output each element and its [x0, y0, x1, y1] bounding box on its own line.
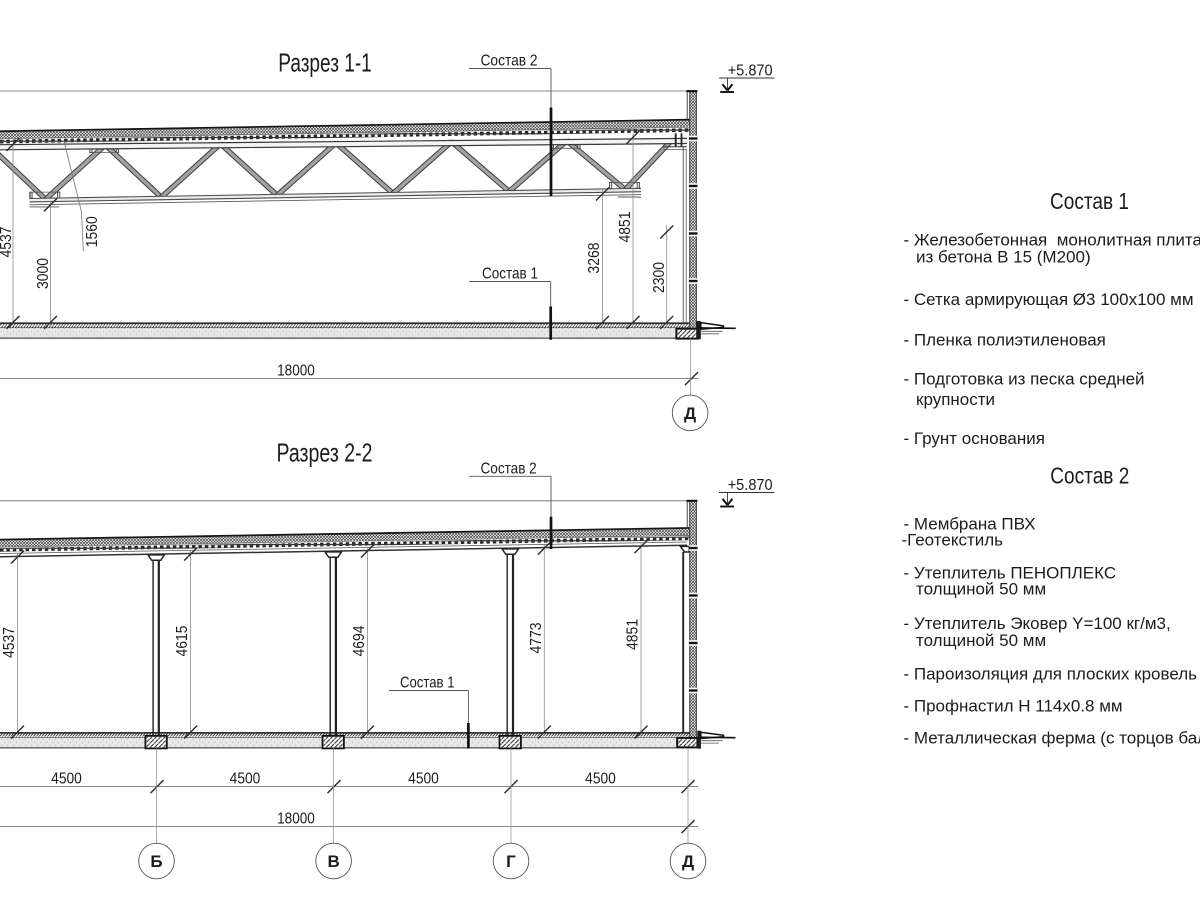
svg-text:Разрез 2-2: Разрез 2-2 — [277, 437, 373, 467]
svg-text:- Сетка армирующая Ø3 100х100: - Сетка армирующая Ø3 100х100 мм — [904, 290, 1194, 309]
svg-text:4537: 4537 — [0, 226, 15, 257]
svg-text:- Профнастил Н 114х0.8 мм: - Профнастил Н 114х0.8 мм — [904, 697, 1123, 716]
svg-text:толщиной 50 мм: толщиной 50 мм — [916, 579, 1046, 598]
svg-text:4500: 4500 — [51, 771, 82, 788]
svg-text:крупности: крупности — [916, 390, 995, 409]
svg-text:4694: 4694 — [351, 625, 368, 656]
svg-text:Состав 1: Состав 1 — [400, 675, 455, 692]
svg-text:4500: 4500 — [408, 771, 439, 788]
svg-text:Состав 2: Состав 2 — [481, 53, 538, 70]
svg-text:Г: Г — [506, 852, 516, 871]
svg-text:-Геотекстиль: -Геотекстиль — [902, 530, 1004, 549]
svg-text:2300: 2300 — [651, 262, 668, 293]
svg-text:Д: Д — [684, 404, 696, 423]
svg-text:- Пленка полиэтиленовая: - Пленка полиэтиленовая — [904, 331, 1106, 350]
svg-text:1560: 1560 — [84, 216, 101, 247]
svg-text:- Грунт основания: - Грунт основания — [904, 429, 1045, 448]
svg-text:4615: 4615 — [174, 625, 191, 656]
svg-text:толщиной 50 мм: толщиной 50 мм — [916, 631, 1046, 650]
svg-text:4500: 4500 — [585, 771, 616, 788]
svg-text:- Подготовка из песка средней: - Подготовка из песка средней — [904, 370, 1145, 389]
svg-text:4773: 4773 — [528, 622, 545, 653]
svg-text:4851: 4851 — [625, 619, 642, 650]
svg-text:из бетона В 15 (М200): из бетона В 15 (М200) — [916, 248, 1091, 267]
svg-text:Разрез 1-1: Разрез 1-1 — [278, 48, 372, 78]
svg-text:+5.870: +5.870 — [728, 477, 773, 494]
svg-text:Состав 2: Состав 2 — [481, 460, 537, 477]
svg-text:18000: 18000 — [277, 811, 315, 828]
svg-text:4500: 4500 — [230, 771, 261, 788]
svg-text:Состав 2: Состав 2 — [1050, 462, 1129, 488]
svg-text:Состав 1: Состав 1 — [1050, 188, 1129, 214]
svg-text:+5.870: +5.870 — [728, 62, 773, 79]
svg-text:4537: 4537 — [1, 627, 18, 658]
svg-text:- Металлическая ферма (с торцо: - Металлическая ферма (с торцов балок) — [904, 729, 1200, 748]
svg-text:18000: 18000 — [277, 362, 315, 379]
svg-text:3268: 3268 — [586, 242, 603, 273]
svg-text:Б: Б — [150, 852, 162, 871]
svg-text:- Пароизоляция для плоских кро: - Пароизоляция для плоских кровель — [904, 665, 1198, 684]
svg-text:В: В — [327, 852, 339, 871]
svg-text:3000: 3000 — [35, 258, 52, 289]
svg-text:Состав 1: Состав 1 — [482, 266, 538, 283]
svg-text:4851: 4851 — [617, 211, 634, 242]
svg-text:Д: Д — [682, 852, 694, 871]
